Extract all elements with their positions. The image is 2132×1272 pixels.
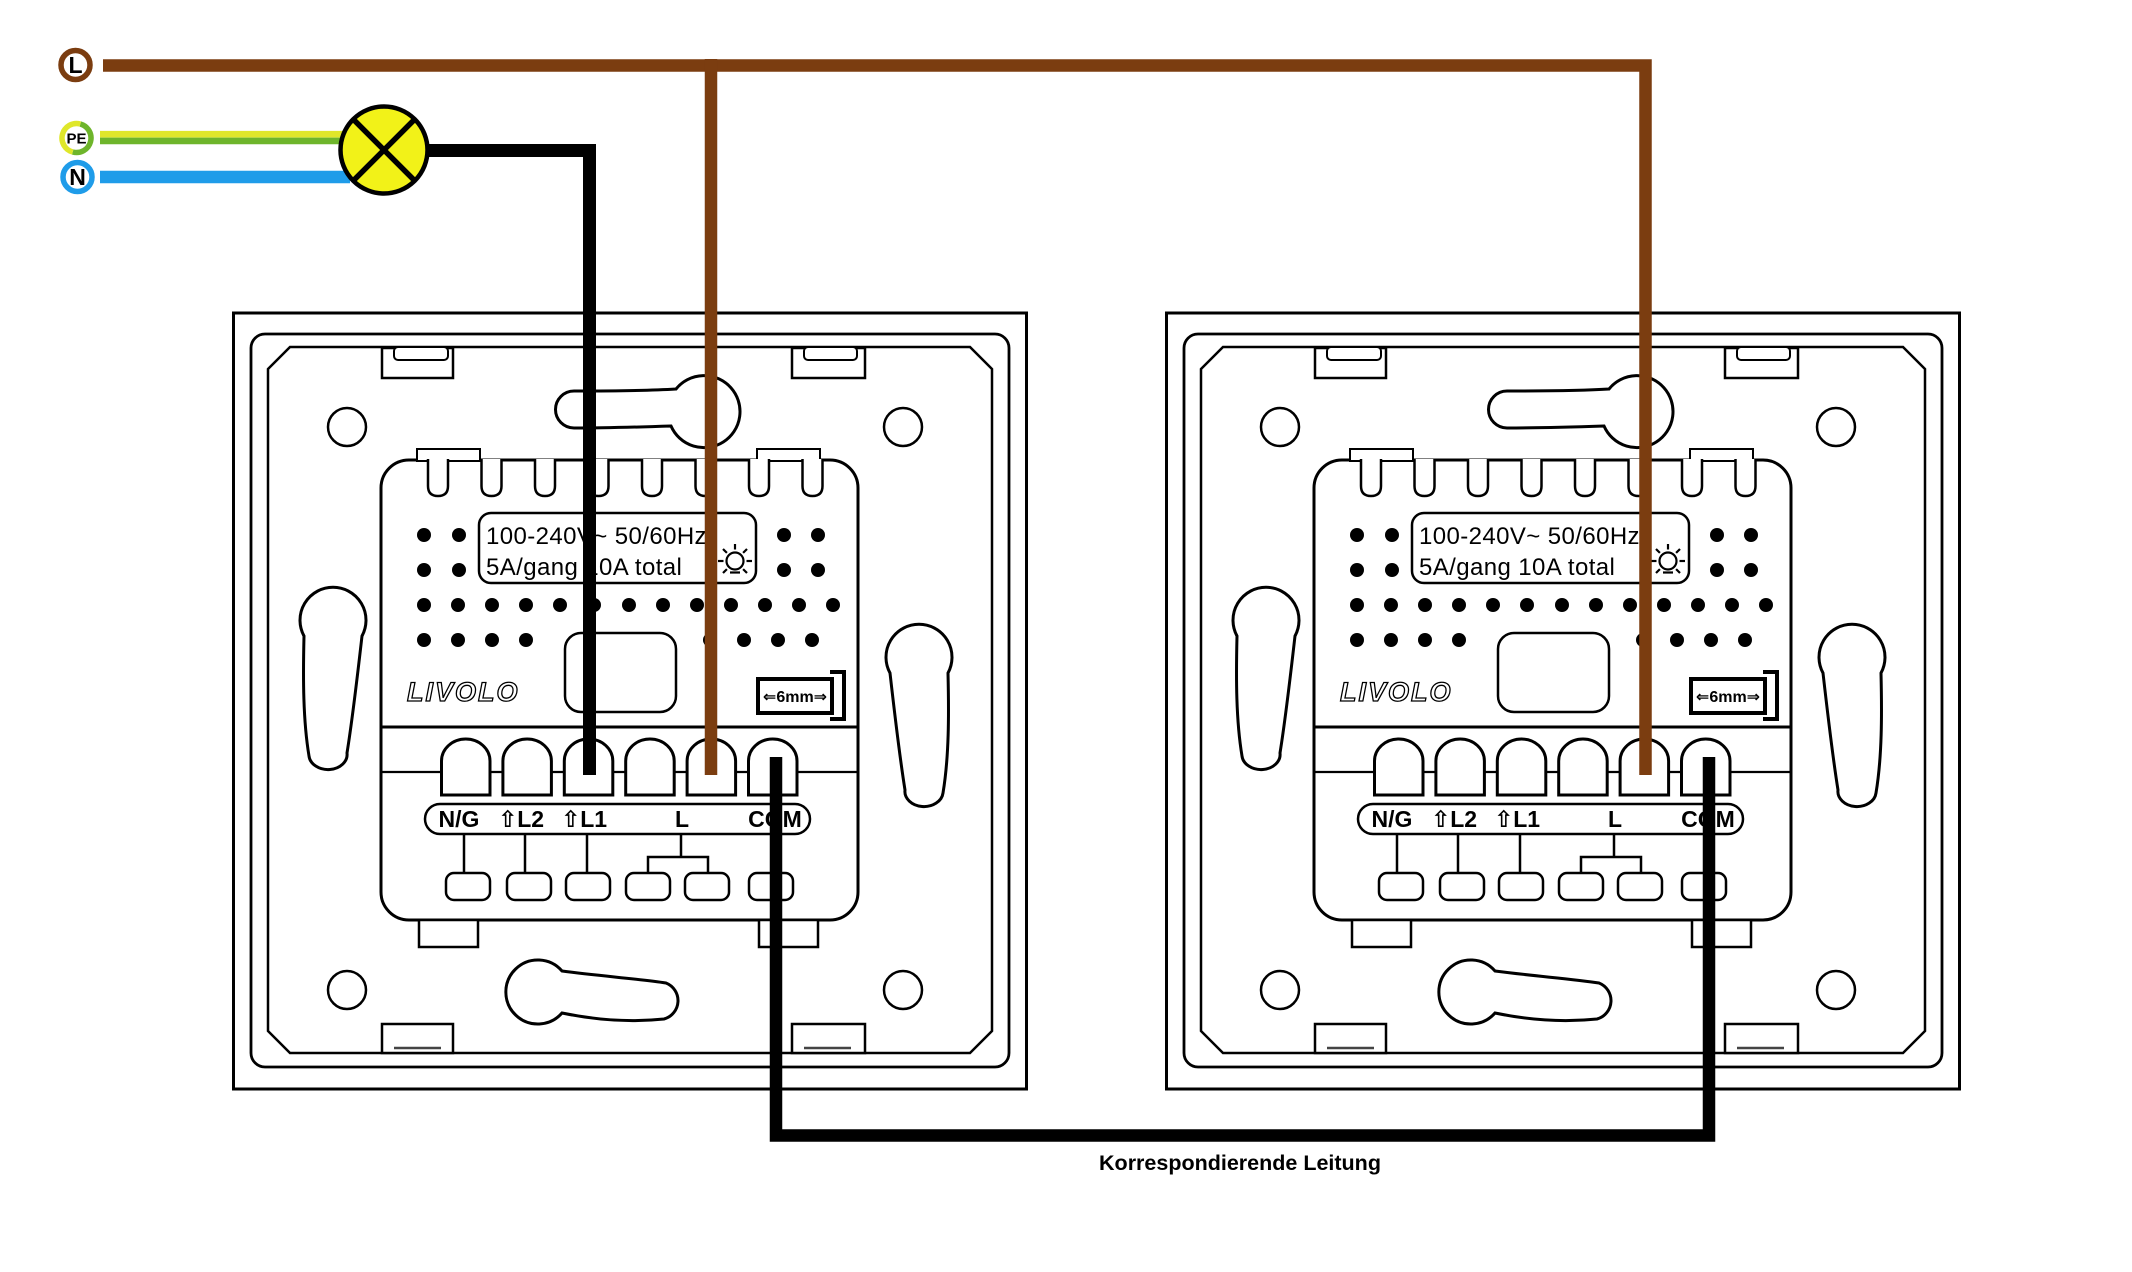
vent-dot (485, 633, 499, 647)
vent-dot (656, 598, 670, 612)
vent-dot (826, 598, 840, 612)
vent-dot (519, 633, 533, 647)
vent-dot (737, 633, 751, 647)
legend-neutral-label: N (69, 164, 86, 190)
vent-dot (417, 563, 431, 577)
vent-dot (690, 598, 704, 612)
terminal-pad (507, 873, 551, 900)
vent-slot (428, 459, 448, 496)
vent-dot (452, 528, 466, 542)
lamp-symbol (341, 107, 428, 194)
spec-line-1: 100-240V~ 50/60Hz (486, 523, 707, 550)
wiring-diagram: 100-240V~ 50/60Hz 5A/gang 10A total LIVO… (0, 0, 2132, 1272)
vent-dot (451, 598, 465, 612)
vent-dot (417, 528, 431, 542)
vent-slot (535, 459, 555, 496)
legend-live-label: L (68, 52, 82, 78)
terminal-pad (685, 873, 729, 900)
screw-hole-top-left (328, 408, 366, 446)
vent-slot (642, 459, 662, 496)
vent-dot (451, 633, 465, 647)
legend-neutral: N (63, 163, 92, 192)
vent-slot (749, 459, 769, 496)
terminal-label-l2: ⇧L2 (498, 806, 544, 832)
vent-dot (519, 598, 533, 612)
vent-dot (777, 528, 791, 542)
vent-dot (553, 598, 567, 612)
vent-dot (771, 633, 785, 647)
terminal-slot-l-in (626, 739, 675, 795)
footer-note: Korrespondierende Leitung (1099, 1151, 1381, 1175)
switch-1: 100-240V~ 50/60Hz 5A/gang 10A total LIVO… (234, 313, 1027, 1089)
vent-dot (811, 528, 825, 542)
terminal-slot-ng (442, 739, 491, 795)
screw-hole-top-right (884, 408, 922, 446)
vent-dot (758, 598, 772, 612)
vent-dot (777, 563, 791, 577)
vent-slot (803, 459, 823, 496)
module-foot-left (419, 920, 478, 947)
terminal-label-l1: ⇧L1 (561, 806, 607, 832)
terminal-pad (446, 873, 490, 900)
vent-dot (452, 563, 466, 577)
brand-logo: LIVOLO (407, 677, 520, 707)
vent-dot (417, 633, 431, 647)
legend-earth: PE (62, 123, 91, 152)
legend-live: L (61, 51, 90, 80)
top-clip-left-notch (394, 347, 448, 360)
vent-dot (811, 563, 825, 577)
top-clip-right-notch (804, 347, 857, 360)
terminal-pad (566, 873, 610, 900)
switch-2 (1167, 313, 1960, 1089)
vent-dot (805, 633, 819, 647)
module-window (565, 633, 676, 712)
terminal-slot-l2 (503, 739, 552, 795)
vent-dot (622, 598, 636, 612)
vent-dot (792, 598, 806, 612)
vent-dot (724, 598, 738, 612)
vent-dot (417, 598, 431, 612)
screw-hole-bottom-right (884, 971, 922, 1009)
legend-earth-label: PE (66, 131, 86, 148)
terminal-label-l: L (675, 806, 689, 832)
vent-slot (482, 459, 502, 496)
module-foot-right (759, 920, 818, 947)
terminal-label-ng: N/G (439, 806, 480, 832)
gauge-label: ⇐6mm⇒ (763, 689, 827, 706)
vent-dot (485, 598, 499, 612)
terminal-pad (626, 873, 670, 900)
wiring-diagram-page: 100-240V~ 50/60Hz 5A/gang 10A total LIVO… (0, 0, 2132, 1272)
screw-hole-bottom-left (328, 971, 366, 1009)
